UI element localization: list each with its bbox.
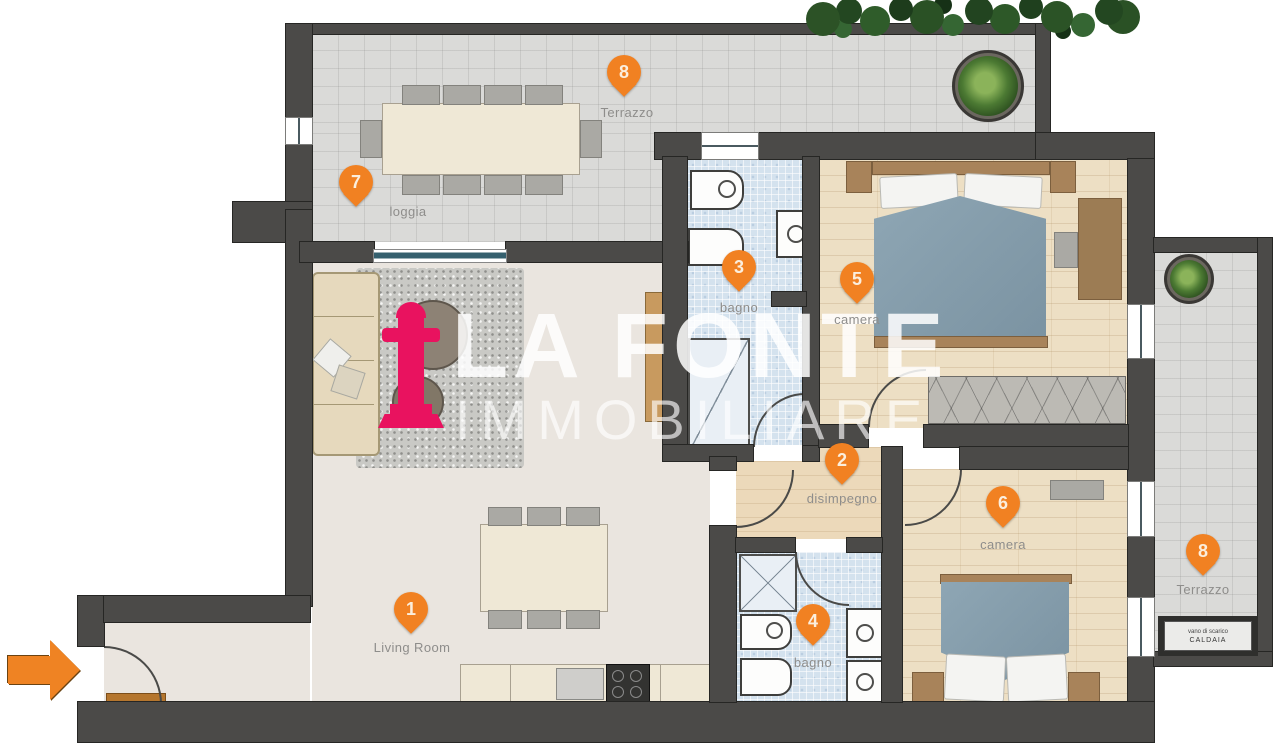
terrace-chair <box>525 85 563 105</box>
wall-segment <box>960 447 1128 469</box>
equipment-box-line1: vano di scarico <box>1188 628 1228 636</box>
wall-segment <box>655 133 702 159</box>
pin-number: 2 <box>825 443 859 477</box>
wall-segment <box>710 526 736 702</box>
dining-chair <box>566 507 600 526</box>
wall-segment <box>286 210 312 606</box>
map-pin-8-terrazzo-top: 8 <box>607 55 641 101</box>
nightstand <box>1068 672 1100 704</box>
dining-chair <box>527 507 561 526</box>
dining-chair <box>488 507 522 526</box>
equipment-box: vano di scarico CALDAIA <box>1158 616 1258 656</box>
burner <box>630 670 642 682</box>
kitchen-divider <box>510 664 511 702</box>
burner <box>612 686 624 698</box>
terrace-chair <box>443 175 481 195</box>
room-label-terrazzo-right: Terrazzo <box>1170 582 1236 597</box>
sofa-seam <box>314 404 374 405</box>
wardrobe <box>928 376 1126 424</box>
pin-number: 8 <box>607 55 641 89</box>
wall-segment <box>1128 159 1154 305</box>
terrace-chair <box>402 85 440 105</box>
room-label-camera-1: camera <box>827 312 887 327</box>
dryer <box>846 660 884 704</box>
brand-subname: IMMOBILIARE <box>455 392 932 448</box>
pin-number: 4 <box>796 604 830 638</box>
living-dining-table <box>480 524 608 612</box>
kitchen-divider <box>660 664 661 702</box>
terrace-chair <box>443 85 481 105</box>
kitchen-stove <box>606 664 650 704</box>
map-pin-6-camera: 6 <box>986 486 1020 532</box>
wall-segment <box>286 144 312 210</box>
dresser <box>1050 480 1104 500</box>
wall-segment <box>506 242 688 262</box>
burner <box>612 670 624 682</box>
wall-segment <box>710 457 736 470</box>
room-label-living: Living Room <box>369 640 455 655</box>
wall-segment <box>288 24 844 34</box>
wall-segment <box>1128 358 1154 482</box>
pin-number: 3 <box>722 250 756 284</box>
wall-segment <box>78 596 104 646</box>
hedge-plants <box>806 2 840 36</box>
wall-segment <box>104 596 310 622</box>
dining-chair <box>488 610 522 629</box>
wall-segment <box>758 133 1036 159</box>
window <box>374 250 506 262</box>
wall-segment <box>1154 238 1272 252</box>
map-pin-8-terrazzo-right: 8 <box>1186 534 1220 580</box>
window <box>702 133 758 159</box>
map-pin-5-camera: 5 <box>840 262 874 308</box>
pillow <box>1006 653 1068 702</box>
room-label-disimpegno: disimpegno <box>792 491 892 506</box>
room-label-camera-2: camera <box>973 537 1033 552</box>
equipment-box-inner: vano di scarico CALDAIA <box>1164 621 1252 651</box>
wall-segment <box>1128 656 1154 702</box>
wall-segment <box>1036 24 1050 139</box>
room-label-bagno-2: bagno <box>783 655 843 670</box>
wall-segment <box>286 24 312 118</box>
brand-fountain-icon <box>368 302 458 434</box>
terrace-dining-table <box>382 103 580 175</box>
room-label-bagno-1: bagno <box>709 300 769 315</box>
window <box>1128 482 1154 536</box>
terrace-chair <box>484 85 522 105</box>
terrace-chair <box>525 175 563 195</box>
wall-segment <box>882 447 902 702</box>
sofa-seam <box>314 316 374 317</box>
wall-segment <box>847 538 882 552</box>
kitchen-sink <box>556 668 604 700</box>
toilet-bowl <box>766 622 783 639</box>
map-pin-7-loggia: 7 <box>339 165 373 211</box>
room-label-terrazzo-top: Terrazzo <box>594 105 660 120</box>
map-pin-1-living: 1 <box>394 592 428 638</box>
entrance-arrow-head <box>50 640 80 700</box>
window <box>286 118 312 144</box>
dining-chair <box>527 610 561 629</box>
nightstand <box>1050 161 1076 193</box>
burner <box>630 686 642 698</box>
shower <box>739 554 797 612</box>
dining-chair <box>566 610 600 629</box>
window <box>1128 305 1154 358</box>
toilet-bowl <box>718 180 736 198</box>
equipment-box-line2: CALDAIA <box>1190 636 1227 645</box>
wall-segment <box>924 425 1128 447</box>
terrace-chair <box>580 120 602 158</box>
potted-plant <box>952 50 1024 122</box>
map-pin-4-bagno: 4 <box>796 604 830 650</box>
wall-segment <box>1128 536 1154 598</box>
entrance-arrow <box>8 656 50 684</box>
pillow <box>944 653 1006 702</box>
room-label-loggia: loggia <box>378 204 438 219</box>
wall-segment <box>78 702 1154 742</box>
terrace-chair <box>402 175 440 195</box>
wall-segment <box>300 242 374 262</box>
map-pin-2-disimpegno: 2 <box>825 443 859 489</box>
potted-plant-small <box>1164 254 1214 304</box>
pin-number: 6 <box>986 486 1020 520</box>
pin-number: 7 <box>339 165 373 199</box>
window <box>1128 598 1154 656</box>
washing-machine <box>846 608 884 658</box>
pin-number: 8 <box>1186 534 1220 568</box>
pin-number: 1 <box>394 592 428 626</box>
nightstand <box>846 161 872 193</box>
pin-number: 5 <box>840 262 874 296</box>
terrace-chair <box>484 175 522 195</box>
wall-segment <box>1258 238 1272 652</box>
desk-chair <box>1054 232 1078 268</box>
bed-headboard <box>872 161 1050 175</box>
floor-plan: vano di scarico CALDAIA LA FONTE IMMOBIL… <box>0 0 1280 749</box>
terrace-chair <box>360 120 382 158</box>
map-pin-3-bagno: 3 <box>722 250 756 296</box>
wall-segment <box>736 538 795 552</box>
nightstand <box>912 672 944 704</box>
wall-segment <box>1036 133 1154 159</box>
wall-segment <box>844 24 1040 34</box>
desk <box>1078 198 1122 300</box>
